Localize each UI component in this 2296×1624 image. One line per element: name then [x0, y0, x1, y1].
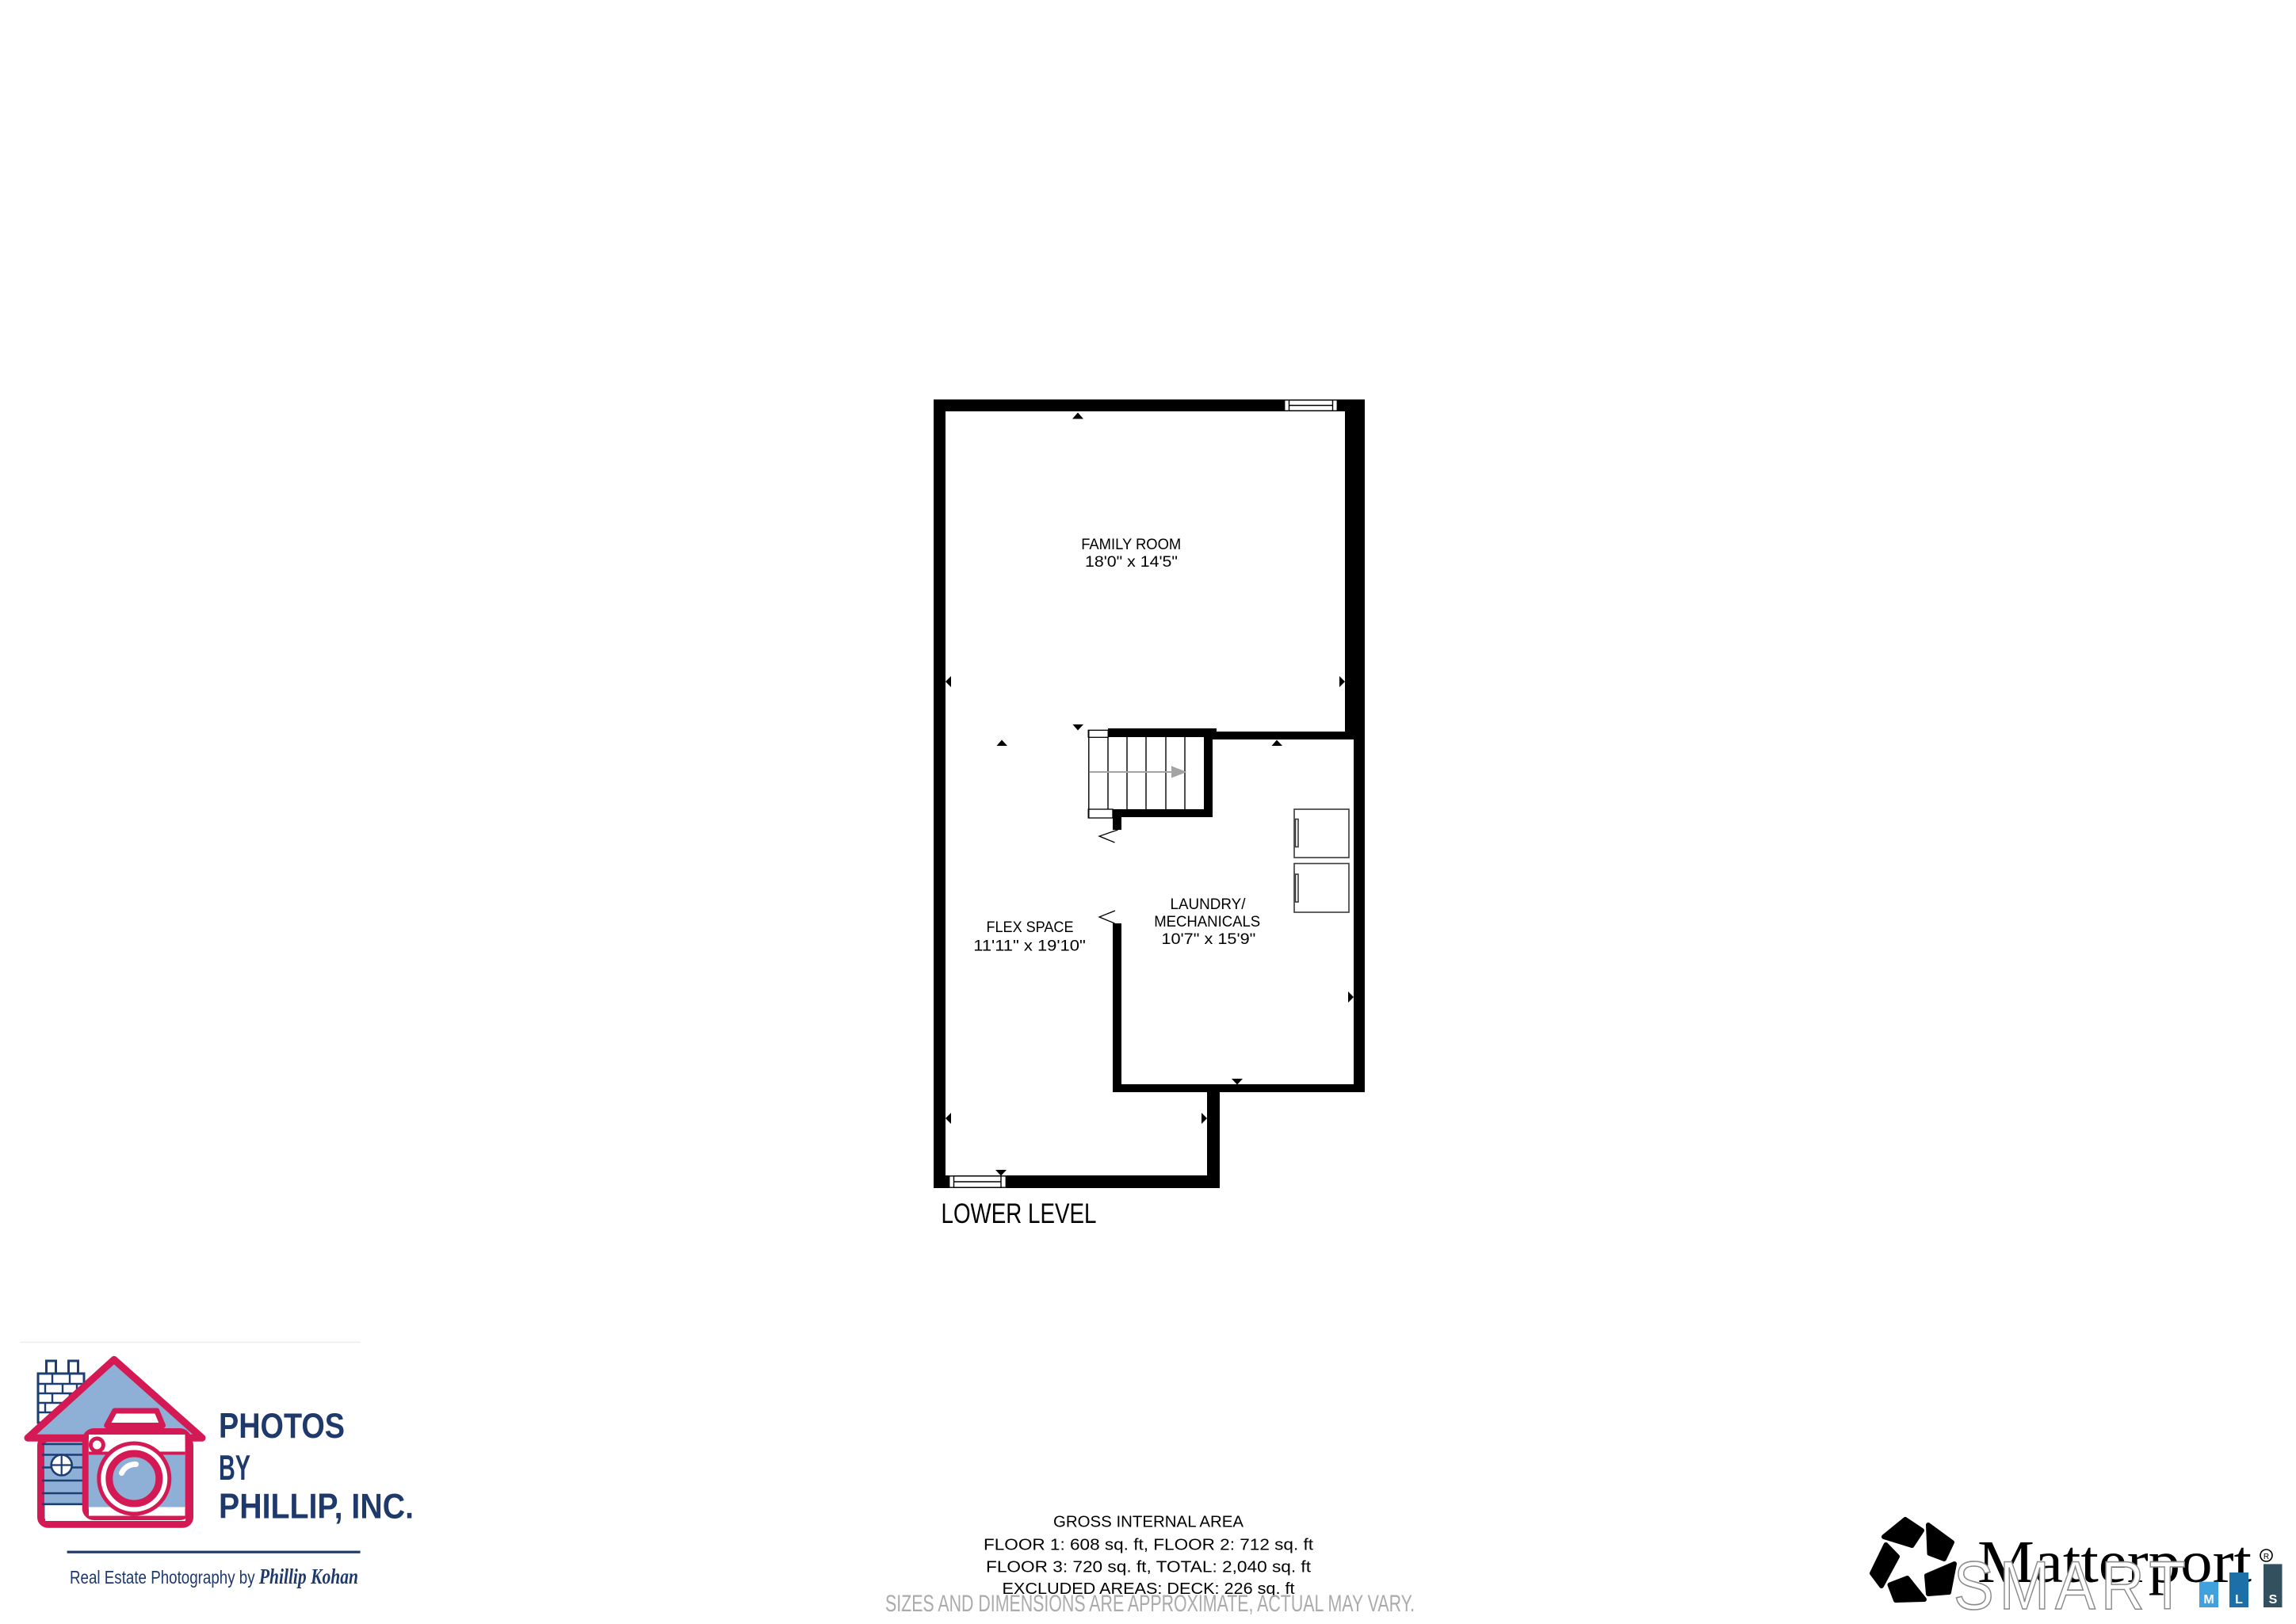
svg-text:LAUNDRY/: LAUNDRY/: [1171, 896, 1247, 913]
svg-text:18'0" x 14'5": 18'0" x 14'5": [1085, 553, 1178, 571]
svg-text:11'11" x 19'10": 11'11" x 19'10": [973, 937, 1086, 954]
svg-text:10'7" x 15'9": 10'7" x 15'9": [1161, 930, 1255, 948]
svg-text:Real Estate Photography by Phi: Real Estate Photography by Phillip Kohan: [70, 1565, 358, 1588]
svg-text:SMART: SMART: [1954, 1548, 2191, 1624]
svg-text:PHILLIP, INC.: PHILLIP, INC.: [219, 1488, 414, 1527]
svg-text:FLOOR 1: 608 sq. ft, FLOOR 2:: FLOOR 1: 608 sq. ft, FLOOR 2: 712 sq. ft: [984, 1537, 1313, 1554]
svg-text:L: L: [2235, 1593, 2243, 1607]
svg-text:MECHANICALS: MECHANICALS: [1154, 913, 1260, 930]
svg-text:PHOTOS: PHOTOS: [219, 1407, 345, 1446]
svg-text:GROSS INTERNAL AREA: GROSS INTERNAL AREA: [1053, 1514, 1244, 1531]
svg-text:M: M: [2203, 1593, 2214, 1607]
svg-text:R: R: [2264, 1553, 2269, 1561]
svg-text:LOWER LEVEL: LOWER LEVEL: [942, 1198, 1097, 1229]
svg-text:FLOOR 3: 720 sq. ft, TOTAL: 2,: FLOOR 3: 720 sq. ft, TOTAL: 2,040 sq. ft: [986, 1559, 1311, 1576]
svg-text:BY: BY: [219, 1449, 250, 1488]
svg-text:SIZES AND DIMENSIONS ARE APPRO: SIZES AND DIMENSIONS ARE APPROXIMATE, AC…: [885, 1591, 1415, 1617]
svg-text:S: S: [2269, 1593, 2278, 1607]
svg-text:FLEX SPACE: FLEX SPACE: [987, 919, 1074, 936]
svg-text:FAMILY ROOM: FAMILY ROOM: [1081, 536, 1181, 553]
